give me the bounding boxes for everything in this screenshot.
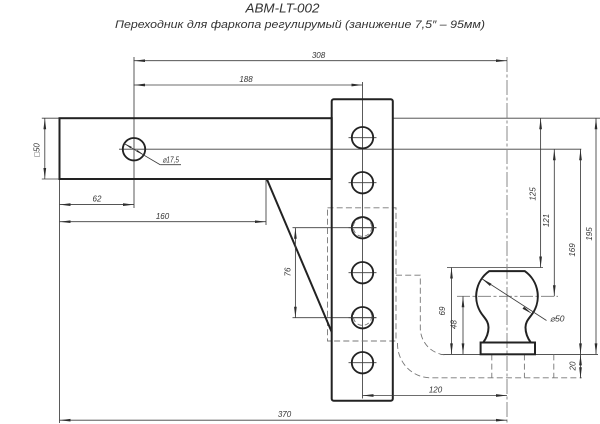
svg-text:160: 160: [156, 212, 170, 221]
svg-text:20: 20: [569, 361, 578, 371]
svg-text:□50: □50: [33, 143, 42, 157]
svg-text:308: 308: [312, 51, 326, 60]
svg-text:120: 120: [429, 386, 443, 395]
svg-text:370: 370: [278, 410, 292, 419]
svg-text:АВМ-LT-002: АВМ-LT-002: [244, 1, 320, 16]
svg-text:⌀50: ⌀50: [550, 315, 565, 324]
svg-text:121: 121: [542, 214, 551, 227]
svg-text:125: 125: [529, 187, 538, 201]
svg-text:76: 76: [284, 267, 293, 276]
svg-text:48: 48: [450, 320, 459, 329]
svg-text:69: 69: [438, 306, 447, 315]
svg-text:⌀17,5: ⌀17,5: [163, 156, 180, 165]
svg-text:195: 195: [585, 227, 594, 241]
svg-text:62: 62: [93, 195, 102, 204]
svg-text:188: 188: [239, 75, 253, 84]
svg-text:169: 169: [568, 243, 577, 257]
svg-text:Переходник для фаркопа регулир: Переходник для фаркопа регулирумый (зани…: [115, 19, 485, 31]
